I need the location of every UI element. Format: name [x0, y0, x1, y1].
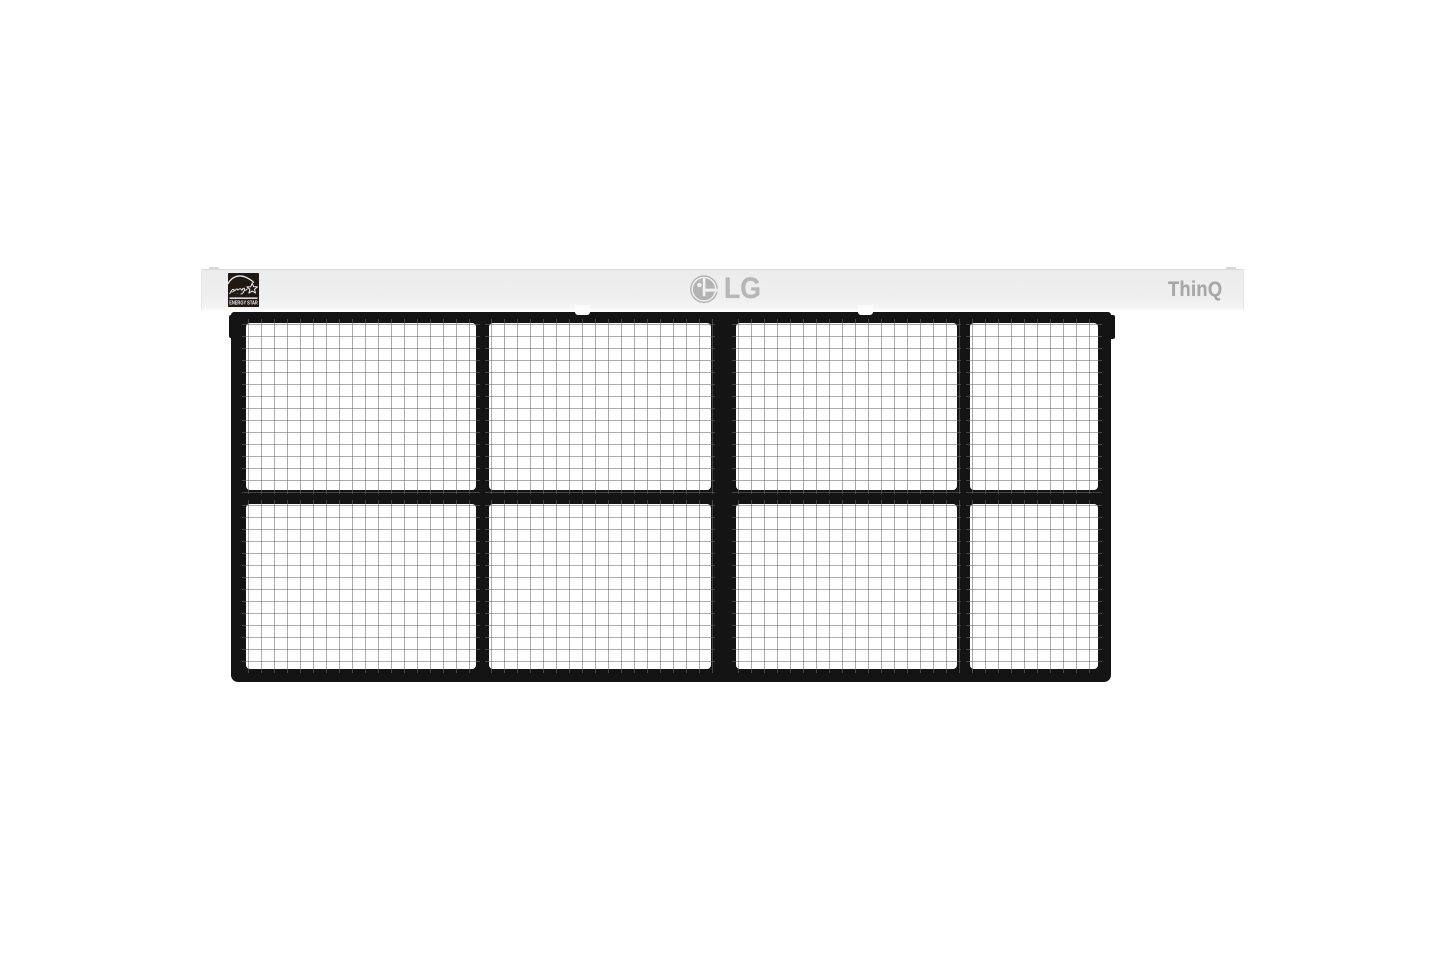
svg-text:ENERGY STAR: ENERGY STAR — [229, 301, 258, 307]
